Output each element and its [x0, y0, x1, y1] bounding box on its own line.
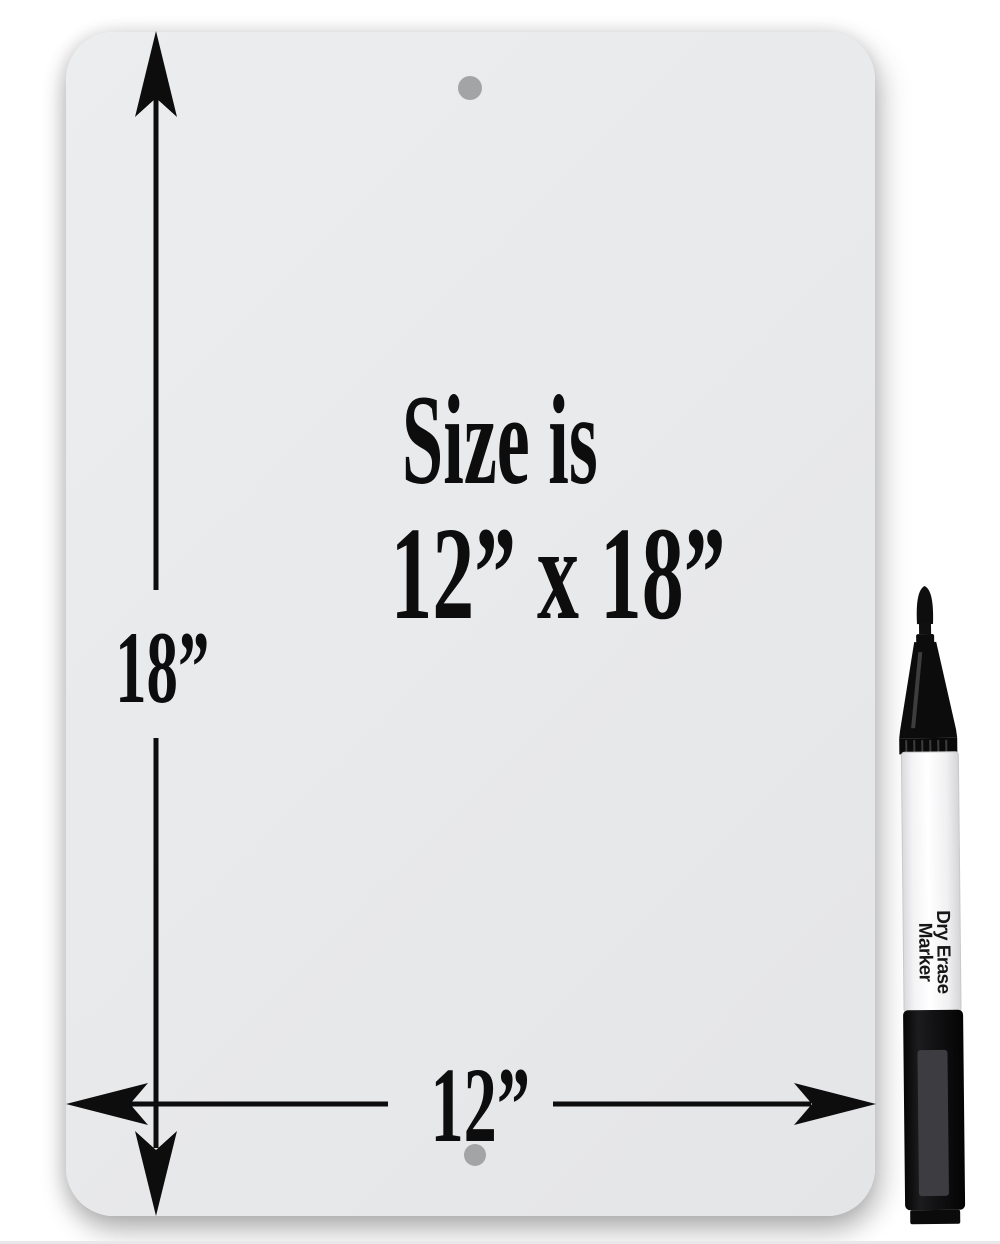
height-dimension-label: 18” [62, 617, 262, 720]
height-arrow-line-upper [154, 96, 159, 590]
dry-erase-marker: Dry Erase Marker [880, 580, 1000, 1244]
size-caption-line1: Size is [300, 376, 700, 504]
width-arrow-line-right [553, 1102, 811, 1107]
size-caption-line1-text: Size is [402, 376, 598, 504]
width-arrow-line-left [128, 1102, 388, 1107]
width-dimension-label: 12” [380, 1053, 580, 1160]
product-photo: Size is 12” x 18” 18” 12” [0, 0, 1000, 1244]
marker-label-line2: Marker [914, 923, 936, 983]
marker-cap-clip-panel [917, 1050, 949, 1196]
height-dimension-label-text: 18” [115, 617, 209, 720]
size-caption-line2: 12” x 18” [292, 507, 692, 640]
marker-nose-cone [898, 642, 957, 739]
marker-felt-tip [916, 586, 933, 624]
marker-cap-end [910, 1210, 960, 1225]
height-arrow-line-lower [154, 738, 159, 1148]
size-caption-line2-text: 12” x 18” [390, 507, 725, 640]
marker-tip-neck [919, 622, 931, 634]
width-dimension-label-text: 12” [430, 1053, 530, 1160]
marker-tip-flare [916, 634, 934, 643]
